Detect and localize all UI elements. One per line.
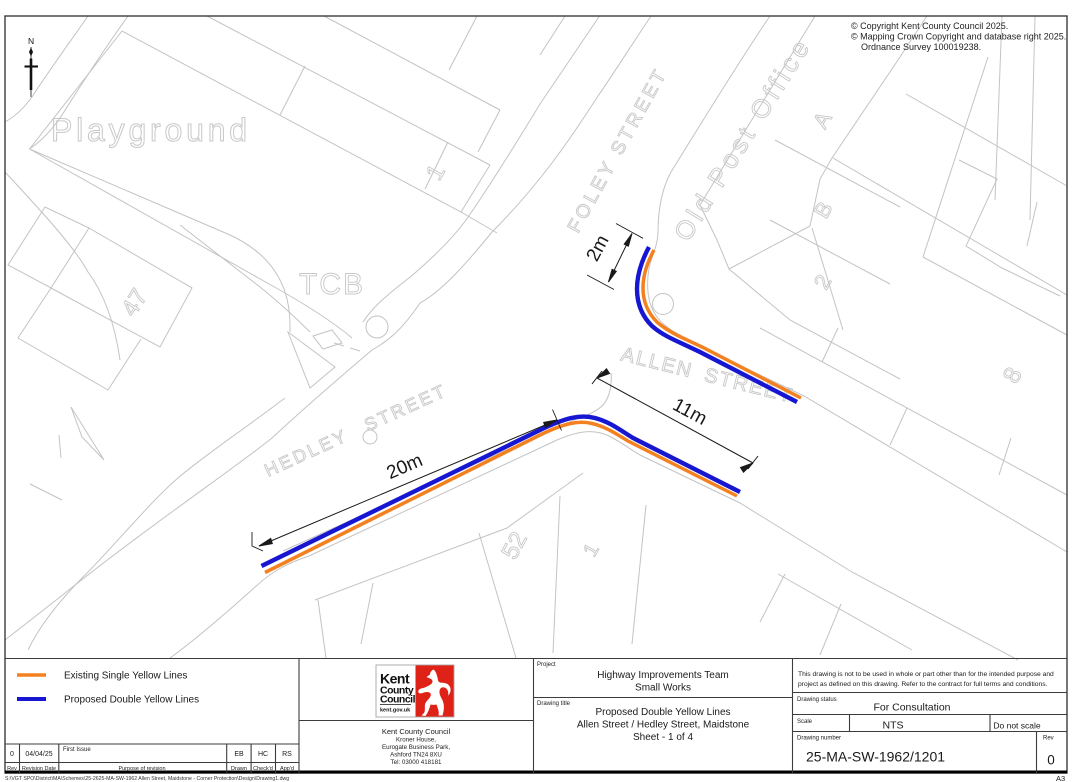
svg-text:Proposed Double Yellow Lines: Proposed Double Yellow Lines <box>595 707 730 718</box>
svg-text:© Mapping Crown Copyright and: © Mapping Crown Copyright and database r… <box>851 32 1066 42</box>
svg-text:25-MA-SW-1962/1201: 25-MA-SW-1962/1201 <box>806 749 945 765</box>
svg-text:Eurogate Business Park,: Eurogate Business Park, <box>382 744 450 751</box>
svg-text:Existing Single Yellow Lines: Existing Single Yellow Lines <box>64 671 187 682</box>
svg-text:Rev: Rev <box>7 766 17 772</box>
svg-text:Allen Street / Hedley Street,: Allen Street / Hedley Street, Maidstone <box>577 720 750 731</box>
svg-text:For Consultation: For Consultation <box>873 702 950 714</box>
svg-text:Small Works: Small Works <box>635 683 691 694</box>
svg-text:project as defined on this dra: project as defined on this drawing. Refe… <box>798 681 1048 688</box>
svg-text:Check'd: Check'd <box>253 766 273 772</box>
svg-text:Do not scale: Do not scale <box>993 721 1041 731</box>
svg-text:Drawn: Drawn <box>231 766 247 772</box>
svg-text:Highway Improvements Team: Highway Improvements Team <box>597 670 729 681</box>
svg-text:0: 0 <box>1047 753 1055 768</box>
svg-text:Kent County Council: Kent County Council <box>382 727 451 736</box>
svg-text:Drawing number: Drawing number <box>797 736 841 742</box>
svg-text:Revision Date: Revision Date <box>22 766 56 772</box>
svg-text:0: 0 <box>10 751 14 758</box>
svg-text:Drawing title: Drawing title <box>537 701 571 707</box>
svg-text:App'd: App'd <box>280 766 294 772</box>
svg-text:Purpose of revision: Purpose of revision <box>118 766 165 772</box>
svg-text:Drawing status: Drawing status <box>797 697 837 703</box>
svg-text:Council: Council <box>380 694 416 706</box>
svg-text:kent.gov.uk: kent.gov.uk <box>380 708 411 714</box>
svg-text:Playground: Playground <box>51 112 251 148</box>
svg-text:Tel: 03000 418181: Tel: 03000 418181 <box>391 759 442 766</box>
svg-text:TCB: TCB <box>299 268 365 301</box>
svg-text:04/04/25: 04/04/25 <box>25 751 52 758</box>
svg-text:NTS: NTS <box>883 720 904 732</box>
svg-text:RS: RS <box>282 751 292 758</box>
svg-text:Project: Project <box>537 662 556 668</box>
svg-text:Rev: Rev <box>1043 736 1054 742</box>
svg-text:A3: A3 <box>1056 774 1065 782</box>
svg-text:This drawing is not to be used: This drawing is not to be used in whole … <box>798 671 1054 678</box>
svg-text:Scale: Scale <box>797 719 813 725</box>
svg-text:S:\VGT SPO\District\MA\Schemes: S:\VGT SPO\District\MA\Schemes\25-2625-M… <box>5 776 289 782</box>
svg-text:Ordnance Survey 100019238.: Ordnance Survey 100019238. <box>861 42 981 52</box>
svg-text:Proposed Double Yellow Lines: Proposed Double Yellow Lines <box>64 695 199 706</box>
svg-text:© Copyright Kent County Counci: © Copyright Kent County Council 2025. <box>851 21 1008 31</box>
svg-text:First Issue: First Issue <box>63 747 91 753</box>
svg-text:Ashford TN24 8XU: Ashford TN24 8XU <box>390 752 442 759</box>
svg-text:HC: HC <box>258 751 268 758</box>
svg-text:EB: EB <box>234 751 244 758</box>
svg-text:Sheet - 1 of 4: Sheet - 1 of 4 <box>633 732 693 743</box>
svg-text:Kroner House,: Kroner House, <box>396 737 436 744</box>
svg-text:N: N <box>28 36 34 46</box>
